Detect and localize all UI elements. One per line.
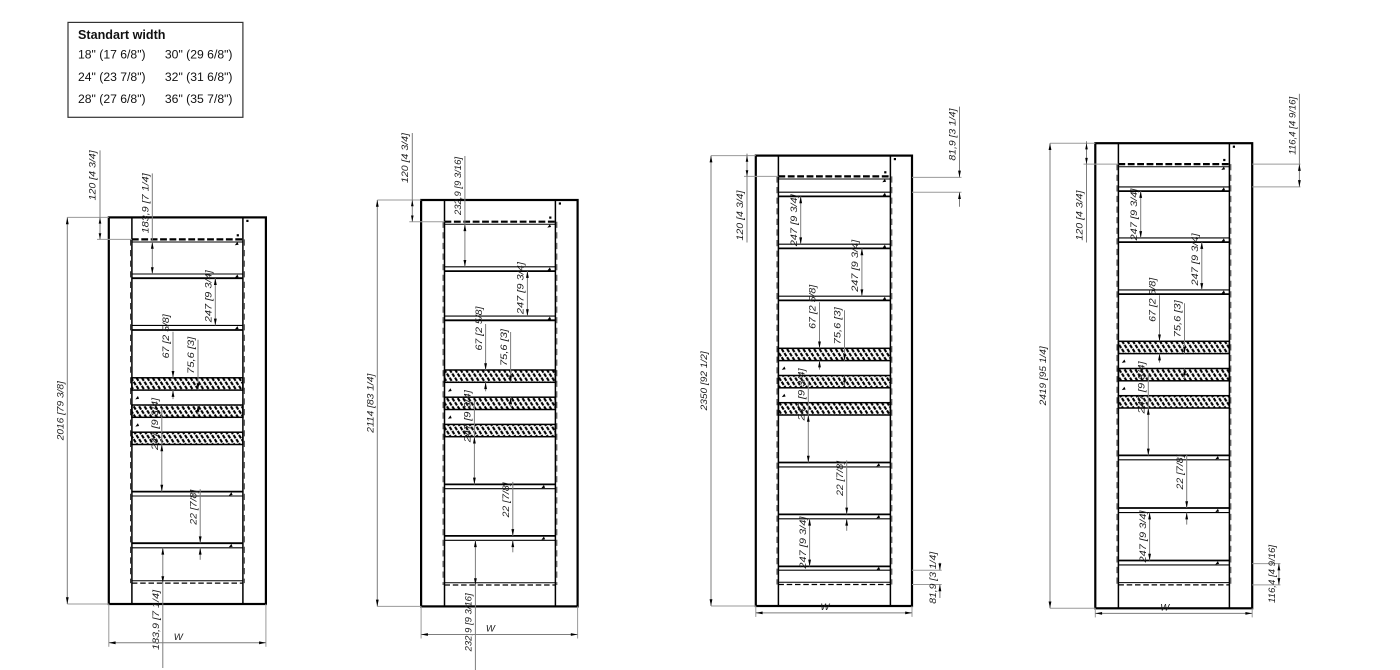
svg-text:247 [9 3/4]: 247 [9 3/4]	[1137, 361, 1148, 415]
svg-text:120 [4 3/4]: 120 [4 3/4]	[1075, 190, 1086, 240]
svg-text:183,9 [7 1/4]: 183,9 [7 1/4]	[151, 590, 162, 650]
svg-text:75,6 [3]: 75,6 [3]	[186, 336, 197, 373]
svg-text:120 [4 3/4]: 120 [4 3/4]	[400, 133, 411, 183]
svg-text:247 [9 3/4]: 247 [9 3/4]	[797, 368, 808, 422]
svg-text:247 [9 3/4]: 247 [9 3/4]	[204, 270, 215, 324]
svg-text:22 [7/8]: 22 [7/8]	[188, 489, 199, 525]
svg-text:247 [9 3/4]: 247 [9 3/4]	[463, 390, 474, 444]
svg-text:247 [9 3/4]: 247 [9 3/4]	[150, 398, 161, 452]
svg-text:28" (27 6/8"): 28" (27 6/8")	[78, 92, 146, 106]
svg-text:36" (35 7/8"): 36" (35 7/8")	[165, 92, 233, 106]
svg-text:75,6 [3]: 75,6 [3]	[833, 307, 844, 344]
svg-text:183,9 [7 1/4]: 183,9 [7 1/4]	[141, 173, 152, 233]
svg-text:247 [9 3/4]: 247 [9 3/4]	[1190, 233, 1201, 287]
svg-text:247 [9 3/4]: 247 [9 3/4]	[798, 516, 809, 570]
svg-text:75,6 [3]: 75,6 [3]	[499, 329, 510, 366]
svg-text:116,4 [4 9/16]: 116,4 [4 9/16]	[1288, 96, 1299, 154]
svg-text:2114 [83 1/4]: 2114 [83 1/4]	[366, 373, 377, 433]
svg-text:120 [4 3/4]: 120 [4 3/4]	[88, 150, 99, 200]
svg-text:22 [7/8]: 22 [7/8]	[835, 461, 846, 497]
svg-text:67 [2 5/8]: 67 [2 5/8]	[474, 306, 485, 350]
svg-text:247 [9 3/4]: 247 [9 3/4]	[1129, 188, 1140, 242]
svg-text:30" (29 6/8"): 30" (29 6/8")	[165, 48, 233, 62]
svg-text:W: W	[174, 632, 184, 643]
svg-text:232,9 [9 3/16]: 232,9 [9 3/16]	[464, 593, 475, 652]
svg-text:81,9 [3 1/4]: 81,9 [3 1/4]	[928, 551, 939, 603]
svg-text:247 [9 3/4]: 247 [9 3/4]	[516, 262, 527, 316]
svg-text:2419 [95 1/4]: 2419 [95 1/4]	[1038, 346, 1049, 406]
svg-text:24" (23 7/8"): 24" (23 7/8")	[78, 70, 146, 84]
svg-text:W: W	[1160, 603, 1170, 614]
svg-text:116,4 [4 9/16]: 116,4 [4 9/16]	[1267, 545, 1278, 603]
svg-text:81,9 [3 1/4]: 81,9 [3 1/4]	[948, 108, 959, 160]
svg-text:247 [9 3/4]: 247 [9 3/4]	[789, 194, 800, 248]
svg-text:232,9 [9 3/16]: 232,9 [9 3/16]	[453, 157, 464, 216]
svg-text:67 [2 5/8]: 67 [2 5/8]	[808, 284, 819, 328]
svg-text:120 [4 3/4]: 120 [4 3/4]	[735, 190, 746, 240]
svg-text:32" (31 6/8"): 32" (31 6/8")	[165, 70, 233, 84]
svg-text:67 [2 5/8]: 67 [2 5/8]	[1148, 277, 1159, 321]
svg-text:Standart width: Standart width	[78, 28, 165, 42]
svg-text:67 [2 5/8]: 67 [2 5/8]	[161, 314, 172, 358]
svg-text:W: W	[820, 602, 830, 613]
svg-text:247 [9 3/4]: 247 [9 3/4]	[850, 239, 861, 293]
svg-text:75,6 [3]: 75,6 [3]	[1173, 300, 1184, 337]
svg-text:W: W	[486, 624, 496, 635]
svg-text:2350 [92 1/2]: 2350 [92 1/2]	[699, 351, 710, 411]
svg-text:2016 [79 3/8]: 2016 [79 3/8]	[56, 381, 67, 441]
svg-text:18" (17 6/8"): 18" (17 6/8")	[78, 48, 146, 62]
svg-text:247 [9 3/4]: 247 [9 3/4]	[1138, 510, 1149, 564]
svg-text:22 [7/8]: 22 [7/8]	[1175, 454, 1186, 490]
svg-text:22 [7/8]: 22 [7/8]	[501, 482, 512, 518]
